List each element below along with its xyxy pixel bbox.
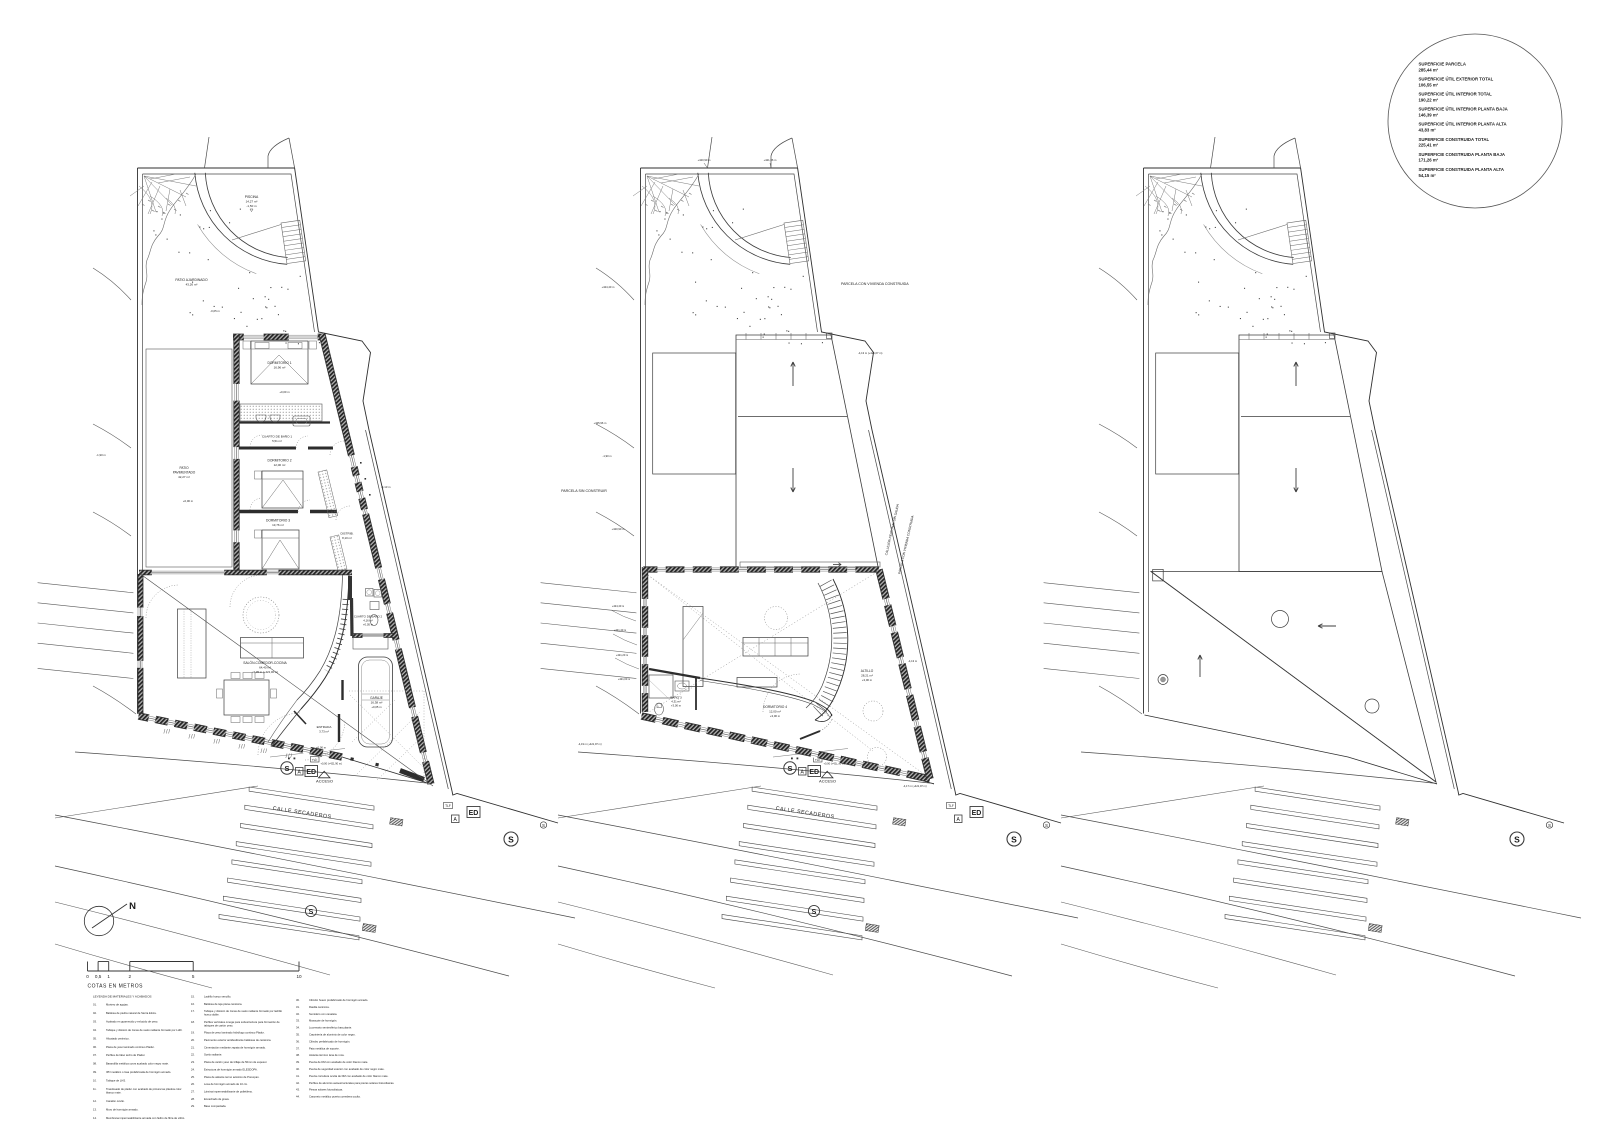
svg-text:28.: 28. bbox=[191, 1097, 195, 1101]
svg-text:CUARTO DE BAÑO 1: CUARTO DE BAÑO 1 bbox=[262, 434, 293, 439]
svg-text:+421,40 m: +421,40 m bbox=[614, 628, 626, 632]
svg-text:0: 0 bbox=[86, 974, 89, 979]
svg-text:+421,36 m: +421,36 m bbox=[764, 158, 778, 162]
svg-text:Mazacote de hormigón.: Mazacote de hormigón. bbox=[309, 1019, 337, 1023]
svg-text:14.: 14. bbox=[93, 1116, 97, 1120]
svg-text:171,26 m²: 171,26 m² bbox=[1419, 158, 1439, 163]
svg-text:19.: 19. bbox=[191, 1031, 195, 1035]
svg-text:31.: 31. bbox=[296, 1005, 300, 1009]
svg-text:17.: 17. bbox=[191, 1009, 195, 1013]
svg-text:23.: 23. bbox=[191, 1060, 195, 1064]
svg-text:Trasdosado de pladur con acaba: Trasdosado de pladur con acabado de pint… bbox=[106, 1087, 182, 1091]
svg-text:S: S bbox=[309, 909, 314, 916]
svg-text:DISTRIB.: DISTRIB. bbox=[340, 532, 353, 536]
svg-text:54,15 m²: 54,15 m² bbox=[1419, 173, 1437, 178]
svg-text:SUPERFICIE ÚTIL INTERIOR PLANT: SUPERFICIE ÚTIL INTERIOR PLANTA BAJA bbox=[1419, 107, 1508, 112]
svg-text:43,83 m²: 43,83 m² bbox=[1419, 128, 1437, 133]
svg-text:blanco mate.: blanco mate. bbox=[106, 1090, 122, 1094]
svg-text:+0,00 m: +0,00 m bbox=[279, 390, 290, 394]
svg-text:-0,05 m: -0,05 m bbox=[210, 309, 220, 313]
svg-text:Lámina impermeabilizante de po: Lámina impermeabilizante de polietileno. bbox=[204, 1090, 253, 1094]
svg-text:Placa de yeso laminado continu: Placa de yeso laminado continuo Pladur. bbox=[106, 1045, 155, 1049]
svg-text:ED: ED bbox=[972, 810, 982, 817]
svg-text:01.: 01. bbox=[93, 1003, 97, 1007]
svg-text:S: S bbox=[1514, 835, 1520, 845]
svg-text:Tabique y división de zonas de: Tabique y división de zonas de suelo rad… bbox=[204, 1009, 282, 1013]
svg-text:Rasilla cerámica.: Rasilla cerámica. bbox=[309, 1005, 330, 1009]
svg-text:+424,40 m: +424,40 m bbox=[612, 604, 624, 608]
svg-text:33.: 33. bbox=[296, 1019, 300, 1023]
svg-text:SUPERFICIE ÚTIL EXTERIOR TOTAL: SUPERFICIE ÚTIL EXTERIOR TOTAL bbox=[1419, 77, 1494, 82]
svg-text:-1,50 m: -1,50 m bbox=[246, 204, 257, 208]
svg-text:0,5: 0,5 bbox=[95, 974, 102, 979]
svg-text:15.: 15. bbox=[191, 995, 195, 999]
svg-text:PISCINA: PISCINA bbox=[245, 195, 259, 199]
svg-text:SUPERFICIE ÚTIL INTERIOR TOTAL: SUPERFICIE ÚTIL INTERIOR TOTAL bbox=[1419, 92, 1493, 97]
svg-text:30.: 30. bbox=[296, 998, 300, 1002]
svg-text:5: 5 bbox=[192, 974, 195, 979]
svg-text:106,55 m²: 106,55 m² bbox=[1419, 83, 1439, 88]
svg-text:S: S bbox=[787, 764, 792, 773]
svg-text:+0,05 m: +0,05 m bbox=[363, 623, 374, 627]
svg-text:+421,00 m: +421,00 m bbox=[618, 677, 630, 681]
svg-text:Perfiles de aluminio autoestru: Perfiles de aluminio autoestructurales p… bbox=[309, 1081, 395, 1085]
svg-text:-1,90 m: -1,90 m bbox=[602, 454, 612, 458]
svg-text:285,44 m²: 285,44 m² bbox=[1419, 67, 1439, 72]
svg-text:03.: 03. bbox=[93, 1019, 97, 1023]
svg-text:+420,90 m: +420,90 m bbox=[612, 527, 626, 531]
svg-text:42,27 m²: 42,27 m² bbox=[178, 475, 190, 479]
svg-text:16,96 m²: 16,96 m² bbox=[274, 366, 286, 370]
svg-text:hueco doble.: hueco doble. bbox=[204, 1013, 220, 1017]
svg-text:146,39 m²: 146,39 m² bbox=[1419, 113, 1439, 118]
svg-text:GARAJE: GARAJE bbox=[370, 696, 383, 700]
svg-text:PATIO AJARDINADO: PATIO AJARDINADO bbox=[175, 278, 208, 282]
svg-text:26.: 26. bbox=[191, 1082, 195, 1086]
svg-text:24.: 24. bbox=[191, 1067, 195, 1071]
svg-text:PAVIMENTADO: PAVIMENTADO bbox=[173, 471, 196, 475]
svg-text:TLF: TLF bbox=[948, 804, 954, 808]
svg-text:5,51 m²: 5,51 m² bbox=[272, 439, 282, 443]
svg-text:Alicatado cerámico.: Alicatado cerámico. bbox=[106, 1036, 130, 1040]
svg-text:Canalón oculto.: Canalón oculto. bbox=[106, 1099, 125, 1103]
svg-text:28,21 m²: 28,21 m² bbox=[861, 674, 873, 678]
svg-text:Aislante térmico lana de roca.: Aislante térmico lana de roca. bbox=[309, 1053, 345, 1057]
svg-text:TLF: TLF bbox=[312, 758, 318, 762]
svg-text:+3,00 m: +3,00 m bbox=[671, 704, 682, 708]
svg-text:-4,17 m (+421,97 m): -4,17 m (+421,97 m) bbox=[903, 784, 927, 788]
svg-text:Losa de hormigón armado de 10: Losa de hormigón armado de 10 cm. bbox=[204, 1082, 248, 1086]
svg-text:Sumidero con canaleta.: Sumidero con canaleta. bbox=[309, 1012, 337, 1016]
svg-text:DORMITORIO 1: DORMITORIO 1 bbox=[267, 361, 291, 365]
svg-text:36.: 36. bbox=[296, 1039, 300, 1043]
svg-text:S: S bbox=[812, 909, 817, 916]
svg-text:Tabique y división de zonas de: Tabique y división de zonas de suelo rad… bbox=[106, 1028, 183, 1032]
svg-text:ALTILLO: ALTILLO bbox=[861, 669, 874, 673]
svg-text:Puerta de DM con acabado de co: Puerta de DM con acabado de color blanco… bbox=[309, 1060, 368, 1064]
svg-text:10: 10 bbox=[296, 974, 302, 979]
svg-text:Carpintería de aluminio de col: Carpintería de aluminio de color negro. bbox=[309, 1033, 356, 1037]
svg-text:PARCELA SIN CONSTRUIR: PARCELA SIN CONSTRUIR bbox=[561, 489, 607, 493]
svg-text:40.: 40. bbox=[296, 1067, 300, 1071]
svg-text:N: N bbox=[129, 901, 136, 912]
svg-text:+420,90 m: +420,90 m bbox=[698, 158, 712, 162]
svg-text:10.: 10. bbox=[93, 1079, 97, 1083]
svg-text:PATIO: PATIO bbox=[179, 466, 189, 470]
svg-text:Baldosa de piedra natural de S: Baldosa de piedra natural de Sierra Elvi… bbox=[106, 1011, 157, 1015]
svg-text:12.: 12. bbox=[93, 1099, 97, 1103]
svg-text:+425,96 m: +425,96 m bbox=[594, 421, 608, 425]
svg-text:190,22 m²: 190,22 m² bbox=[1419, 98, 1439, 103]
svg-text:+0,00 m: +0,00 m bbox=[316, 746, 327, 750]
svg-text:Pata metálica de soporte.: Pata metálica de soporte. bbox=[309, 1046, 340, 1050]
svg-text:Puerta de seguridad exterior c: Puerta de seguridad exterior con acabado… bbox=[309, 1067, 385, 1071]
svg-text:43.: 43. bbox=[296, 1088, 300, 1092]
svg-text:Muro de hormigón armado.: Muro de hormigón armado. bbox=[106, 1107, 139, 1111]
svg-text:42.: 42. bbox=[296, 1081, 300, 1085]
svg-text:Perfiles verticales omega para: Perfiles verticales omega para subestruc… bbox=[204, 1020, 280, 1024]
svg-text:Perfiles de falso techo de Pla: Perfiles de falso techo de Pladur. bbox=[106, 1053, 146, 1057]
svg-text:ACCESO: ACCESO bbox=[316, 779, 333, 784]
svg-text:+0,05 m (+422,00 m): +0,05 m (+422,00 m) bbox=[252, 670, 278, 674]
svg-text:SUPERFICIE ÚTIL INTERIOR PLANT: SUPERFICIE ÚTIL INTERIOR PLANTA ALTA bbox=[1419, 122, 1507, 127]
svg-text:ED: ED bbox=[469, 810, 479, 817]
svg-text:12,00 m²: 12,00 m² bbox=[769, 710, 781, 714]
svg-text:ED: ED bbox=[306, 769, 316, 776]
svg-text:S: S bbox=[542, 823, 545, 828]
svg-text:09.: 09. bbox=[93, 1070, 97, 1074]
svg-text:Placa de cartón yeso de trilla: Placa de cartón yeso de trillaje de 50mm… bbox=[204, 1060, 267, 1064]
svg-text:-1,90 m: -1,90 m bbox=[96, 453, 106, 457]
svg-text:ED: ED bbox=[809, 769, 819, 776]
svg-text:-4,13 m: -4,13 m bbox=[908, 659, 918, 663]
svg-text:29.: 29. bbox=[191, 1104, 195, 1108]
svg-text:16,38 m²: 16,38 m² bbox=[371, 701, 383, 705]
svg-text:DORMITORIO 4: DORMITORIO 4 bbox=[763, 705, 787, 709]
svg-text:12,00 m²: 12,00 m² bbox=[274, 463, 286, 467]
svg-text:ACCESO: ACCESO bbox=[819, 779, 836, 784]
svg-text:08.: 08. bbox=[93, 1062, 97, 1066]
svg-text:DORMITORIO 3: DORMITORIO 3 bbox=[266, 519, 290, 523]
svg-text:S: S bbox=[508, 835, 514, 845]
svg-text:IPN metálico o losa prefabrica: IPN metálico o losa prefabricada de horm… bbox=[106, 1070, 171, 1074]
svg-text:+3,00 m: +3,00 m bbox=[770, 714, 781, 718]
svg-text:Cimentación mediante zapata de: Cimentación mediante zapata de hormigón … bbox=[204, 1045, 266, 1049]
svg-text:32.: 32. bbox=[296, 1012, 300, 1016]
svg-text:Base compactada.: Base compactada. bbox=[204, 1104, 227, 1108]
svg-text:ENTRADA: ENTRADA bbox=[317, 725, 333, 729]
svg-text:SUPERFICIE CONSTRUIDA TOTAL: SUPERFICIE CONSTRUIDA TOTAL bbox=[1419, 137, 1490, 142]
svg-text:Cilindro prefabricado de hormi: Cilindro prefabricado de hormigón. bbox=[309, 1039, 350, 1043]
svg-text:TLF: TLF bbox=[445, 804, 451, 808]
svg-text:44.: 44. bbox=[296, 1095, 300, 1099]
svg-text:S: S bbox=[1045, 823, 1048, 828]
svg-text:+0,00 m: +0,00 m bbox=[183, 499, 194, 503]
svg-text:25.: 25. bbox=[191, 1075, 195, 1079]
svg-text:05.: 05. bbox=[93, 1036, 97, 1040]
svg-text:20.: 20. bbox=[191, 1038, 195, 1042]
svg-text:COTAS EN METROS: COTAS EN METROS bbox=[88, 984, 144, 990]
svg-text:Tabique de LHS.: Tabique de LHS. bbox=[106, 1079, 126, 1083]
svg-text:2: 2 bbox=[129, 974, 132, 979]
svg-text:-4,13 m: -4,13 m bbox=[381, 485, 391, 489]
svg-text:LEYENDA DE MATERIALES Y ACABAD: LEYENDA DE MATERIALES Y ACABADOS bbox=[93, 995, 152, 999]
svg-text:Casoneto metálico puerta corre: Casoneto metálico puerta corredera ocult… bbox=[309, 1095, 361, 1099]
svg-text:22.: 22. bbox=[191, 1053, 195, 1057]
svg-text:+3,00 m: +3,00 m bbox=[862, 678, 873, 682]
svg-text:Suelo radiante.: Suelo radiante. bbox=[204, 1053, 222, 1057]
svg-text:Baldosa de teja plana cerámica: Baldosa de teja plana cerámica. bbox=[204, 1002, 242, 1006]
svg-text:Mortero de agujas.: Mortero de agujas. bbox=[106, 1003, 129, 1007]
svg-text:39.: 39. bbox=[296, 1060, 300, 1064]
svg-text:37.: 37. bbox=[296, 1046, 300, 1050]
svg-text:38.: 38. bbox=[296, 1053, 300, 1057]
svg-text:34.: 34. bbox=[296, 1026, 300, 1030]
svg-text:Placa de yeso laminado hidrófu: Placa de yeso laminado hidrófugo continu… bbox=[204, 1031, 265, 1035]
svg-text:Cilindro hueco prefabricado de: Cilindro hueco prefabricado de hormigón … bbox=[309, 998, 368, 1002]
svg-text:DORMITORIO 2: DORMITORIO 2 bbox=[267, 459, 291, 463]
svg-text:+0,05 m: +0,05 m bbox=[371, 705, 382, 709]
svg-text:14,27 m²: 14,27 m² bbox=[246, 200, 258, 204]
svg-text:SUPERFICIE PARCELA: SUPERFICIE PARCELA bbox=[1419, 62, 1466, 67]
svg-text:S: S bbox=[1011, 835, 1017, 845]
svg-text:07.: 07. bbox=[93, 1053, 97, 1057]
svg-text:27.: 27. bbox=[191, 1090, 195, 1094]
svg-text:64,40 m²: 64,40 m² bbox=[259, 666, 271, 670]
svg-text:35.: 35. bbox=[296, 1033, 300, 1037]
svg-text:SALÓN-COMEDOR-COCINA: SALÓN-COMEDOR-COCINA bbox=[243, 660, 287, 665]
svg-text:SUPERFICIE CONSTRUIDA PLANTA B: SUPERFICIE CONSTRUIDA PLANTA BAJA bbox=[1419, 152, 1506, 157]
svg-text:Encachado de grava.: Encachado de grava. bbox=[204, 1097, 230, 1101]
svg-text:PARCELA CON VIVIENDA CONSTRUID: PARCELA CON VIVIENDA CONSTRUIDA bbox=[841, 282, 909, 286]
svg-text:S: S bbox=[284, 764, 289, 773]
svg-text:+424,40 m: +424,40 m bbox=[602, 285, 616, 289]
svg-text:S: S bbox=[1548, 823, 1551, 828]
svg-text:3,73 m²: 3,73 m² bbox=[319, 730, 329, 734]
svg-text:8,10 m²: 8,10 m² bbox=[342, 536, 352, 540]
svg-text:11.: 11. bbox=[93, 1087, 97, 1091]
svg-text:04.: 04. bbox=[93, 1028, 97, 1032]
svg-text:Acabado en guarnecido y enluci: Acabado en guarnecido y enlucido de yeso… bbox=[106, 1019, 158, 1023]
svg-text:Placa de aislante termo acústi: Placa de aislante termo acústico de Pore… bbox=[204, 1075, 260, 1079]
svg-text:06.: 06. bbox=[93, 1045, 97, 1049]
svg-text:02.: 02. bbox=[93, 1011, 97, 1015]
svg-text:Pavimento exterior antidesliza: Pavimento exterior antideslizante baldos… bbox=[204, 1038, 271, 1042]
svg-text:-4,13 m (+421,07 m): -4,13 m (+421,07 m) bbox=[858, 351, 883, 355]
svg-text:Lucernario semiesférico bascul: Lucernario semiesférico basculante. bbox=[309, 1026, 352, 1030]
svg-text:43,26 m²: 43,26 m² bbox=[186, 283, 198, 287]
svg-text:+421,20 m: +421,20 m bbox=[616, 653, 628, 657]
svg-text:18.: 18. bbox=[191, 1020, 195, 1024]
svg-text:Piezas solares fotovoltaicas.: Piezas solares fotovoltaicas. bbox=[309, 1088, 343, 1092]
svg-text:tabiques de cartón yeso.: tabiques de cartón yeso. bbox=[204, 1023, 234, 1027]
svg-text:Puerta corredera oculta de DM: Puerta corredera oculta de DM con acabad… bbox=[309, 1074, 389, 1078]
svg-text:225,41 m²: 225,41 m² bbox=[1419, 143, 1439, 148]
svg-text:41.: 41. bbox=[296, 1074, 300, 1078]
svg-text:Ladrillo hueco sencillo.: Ladrillo hueco sencillo. bbox=[204, 995, 231, 999]
svg-text:13,76 m²: 13,76 m² bbox=[272, 523, 284, 527]
svg-text:21.: 21. bbox=[191, 1045, 195, 1049]
svg-text:+0,00 (+421,90 m): +0,00 (+421,90 m) bbox=[321, 762, 342, 766]
svg-text:-4,19 m (+421,97 m): -4,19 m (+421,97 m) bbox=[578, 742, 602, 746]
svg-text:Barandilla metálica curva acab: Barandilla metálica curva acabado color … bbox=[106, 1062, 169, 1066]
svg-text:1: 1 bbox=[107, 974, 110, 979]
svg-text:16.: 16. bbox=[191, 1002, 195, 1006]
svg-text:SUPERFICIE CONSTRUIDA PLANTA A: SUPERFICIE CONSTRUIDA PLANTA ALTA bbox=[1419, 167, 1504, 172]
svg-text:Membrana impermeabilizante arm: Membrana impermeabilizante armada con fi… bbox=[106, 1116, 185, 1120]
svg-text:Estructura de hormigón armado: Estructura de hormigón armado ELESDOPA. bbox=[204, 1067, 258, 1071]
svg-text:13.: 13. bbox=[93, 1107, 97, 1111]
